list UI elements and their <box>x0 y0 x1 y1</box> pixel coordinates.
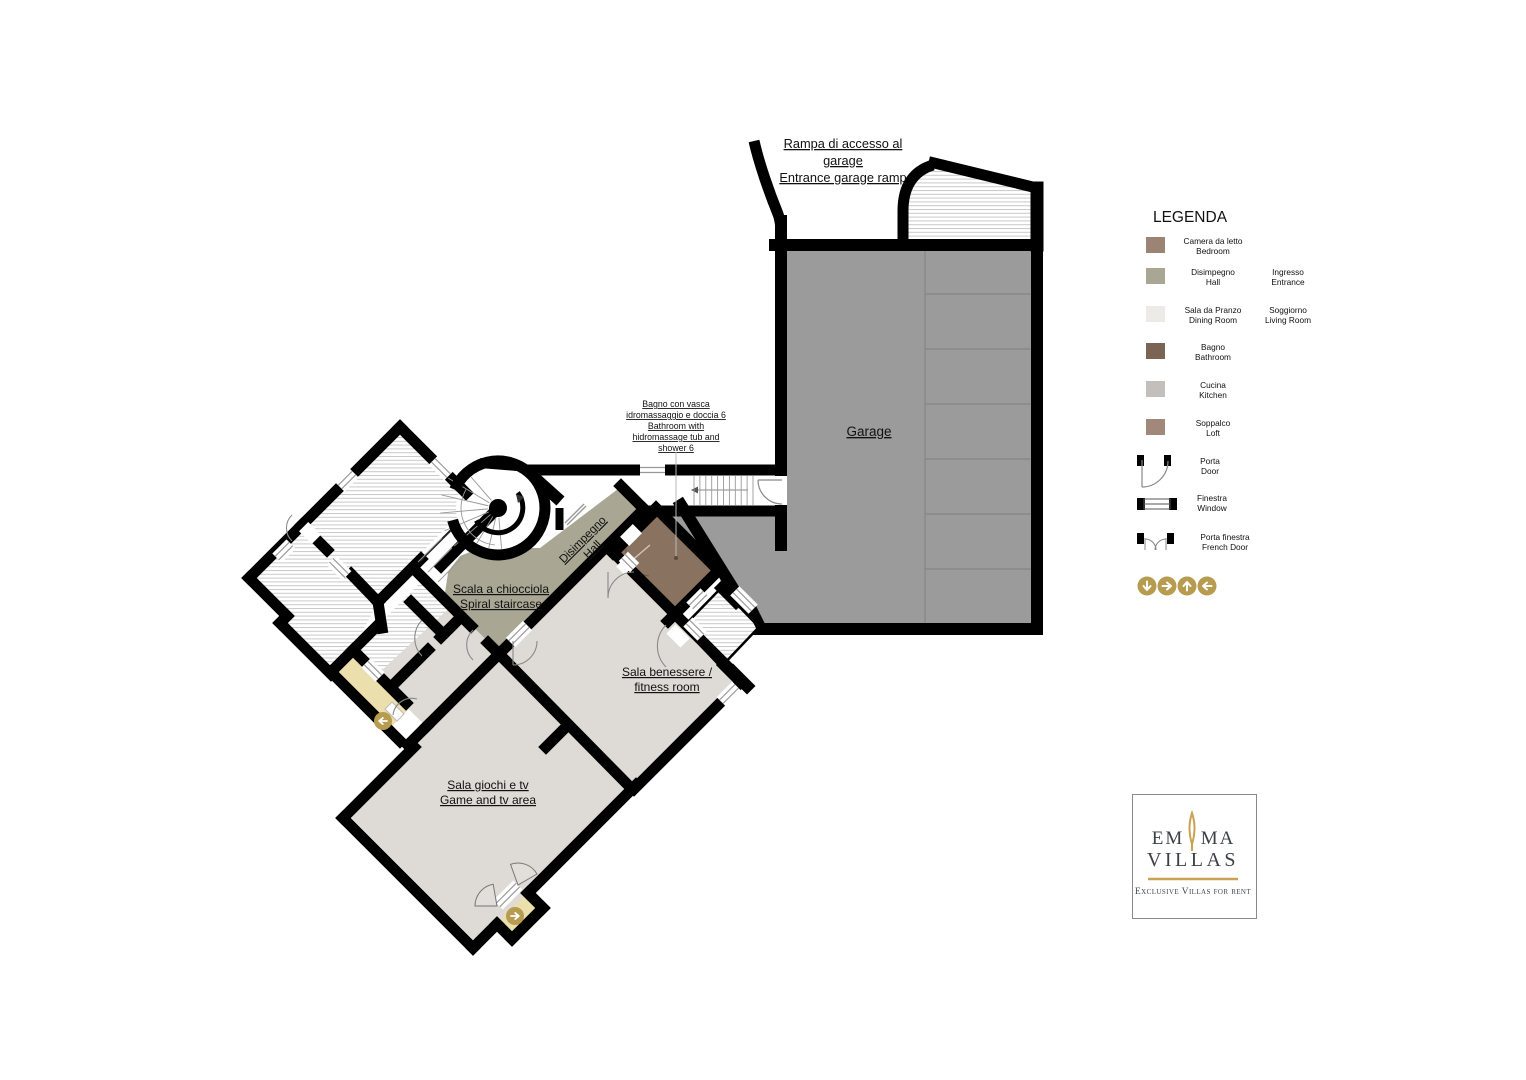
svg-text:Sala benessere /: Sala benessere / <box>622 665 713 679</box>
svg-text:Porta finestra: Porta finestra <box>1200 532 1250 542</box>
svg-text:Spiral staircase: Spiral staircase <box>460 597 542 611</box>
svg-text:Kitchen: Kitchen <box>1199 390 1227 400</box>
svg-text:Sala da Pranzo: Sala da Pranzo <box>1185 305 1242 315</box>
svg-text:Ingresso: Ingresso <box>1272 267 1304 277</box>
svg-text:Window: Window <box>1197 503 1228 513</box>
svg-text:Living Room: Living Room <box>1265 315 1311 325</box>
svg-text:Door: Door <box>1201 466 1219 476</box>
svg-text:Sala giochi e tv: Sala giochi e tv <box>447 778 528 792</box>
svg-text:garage: garage <box>823 153 863 168</box>
svg-text:Scala a chiocciola: Scala a chiocciola <box>453 582 549 596</box>
svg-text:VILLAS: VILLAS <box>1147 849 1239 871</box>
svg-text:Bedroom: Bedroom <box>1196 246 1230 256</box>
svg-text:EM: EM <box>1152 828 1185 849</box>
svg-text:MA: MA <box>1201 828 1236 849</box>
svg-text:Bagno con vasca: Bagno con vasca <box>642 399 710 409</box>
svg-text:Entrance: Entrance <box>1271 277 1305 287</box>
svg-text:French Door: French Door <box>1202 542 1248 552</box>
svg-text:Rampa di accesso al: Rampa di accesso al <box>784 136 903 151</box>
svg-text:LEGENDA: LEGENDA <box>1153 209 1228 226</box>
svg-text:Soggiorno: Soggiorno <box>1269 305 1307 315</box>
svg-text:fitness room: fitness room <box>634 680 699 694</box>
svg-text:Garage: Garage <box>846 424 891 439</box>
svg-text:Exclusive Villas for rent: Exclusive Villas for rent <box>1135 886 1251 897</box>
svg-text:Finestra: Finestra <box>1197 493 1227 503</box>
svg-text:shower 6: shower 6 <box>658 443 694 453</box>
svg-text:Loft: Loft <box>1206 428 1221 438</box>
svg-text:Camera da letto: Camera da letto <box>1183 236 1242 246</box>
svg-text:Hall: Hall <box>1206 277 1220 287</box>
svg-text:idromassaggio e doccia 6: idromassaggio e doccia 6 <box>626 410 726 420</box>
svg-text:Bathroom: Bathroom <box>1195 352 1231 362</box>
svg-text:Cucina: Cucina <box>1200 380 1226 390</box>
svg-text:Porta: Porta <box>1200 456 1220 466</box>
svg-text:Entrance garage ramp: Entrance garage ramp <box>779 170 906 185</box>
svg-text:Disimpegno: Disimpegno <box>1191 267 1235 277</box>
svg-text:Bagno: Bagno <box>1201 342 1225 352</box>
svg-text:Soppalco: Soppalco <box>1196 418 1231 428</box>
svg-text:Game and tv area: Game and tv area <box>440 793 536 807</box>
svg-text:Bathroom with: Bathroom with <box>648 421 704 431</box>
svg-text:Dining Room: Dining Room <box>1189 315 1237 325</box>
svg-text:hidromassage tub and: hidromassage tub and <box>632 432 719 442</box>
